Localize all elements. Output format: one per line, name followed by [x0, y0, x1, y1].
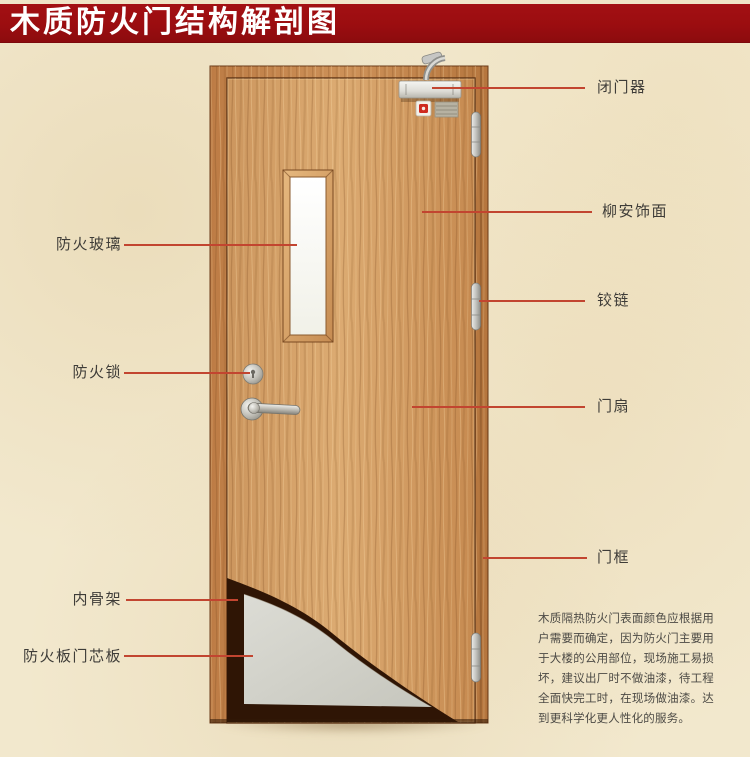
callout-line-hinge — [479, 300, 585, 302]
callout-line-door-frame — [483, 557, 587, 559]
fire-door-illustration — [198, 42, 502, 742]
hinge-top — [472, 112, 481, 157]
description-text: 木质隔热防火门表面颜色应根据用户需要而确定，因为防火门主要用于大楼的公用部位，现… — [538, 609, 714, 729]
callout-line-fire-glass — [124, 244, 297, 246]
label-veneer: 柳安饰面 — [602, 203, 668, 221]
callout-line-door-closer — [432, 87, 585, 89]
door-bottom-edge — [210, 719, 488, 723]
hinge-bottom — [472, 633, 481, 682]
label-fire-glass: 防火玻璃 — [0, 236, 122, 254]
label-door-leaf: 门扇 — [597, 398, 630, 416]
hinge-middle — [472, 283, 481, 330]
title-banner: 木质防火门结构解剖图 — [0, 4, 750, 43]
label-core-panel: 防火板门芯板 — [0, 648, 122, 666]
callout-line-door-leaf — [412, 406, 585, 408]
callout-line-fire-lock — [124, 372, 250, 374]
door-closer-body — [399, 81, 461, 98]
label-hinge: 铰链 — [597, 292, 630, 310]
fire-glass-pane — [290, 177, 326, 335]
label-inner-skeleton: 内骨架 — [0, 591, 122, 609]
alarm-indicator — [416, 101, 431, 116]
label-door-frame: 门框 — [597, 549, 630, 567]
fire-glass-window — [283, 170, 333, 342]
callout-line-inner-skeleton — [126, 599, 238, 601]
page-title: 木质防火门结构解剖图 — [0, 4, 750, 42]
fire-lock-cylinder — [243, 364, 263, 384]
callout-line-core-panel — [124, 655, 253, 657]
callout-line-veneer — [422, 211, 592, 213]
label-door-closer: 闭门器 — [597, 79, 647, 97]
fire-door-svg — [198, 42, 502, 742]
label-fire-lock: 防火锁 — [0, 364, 122, 382]
vent-box — [435, 102, 458, 117]
